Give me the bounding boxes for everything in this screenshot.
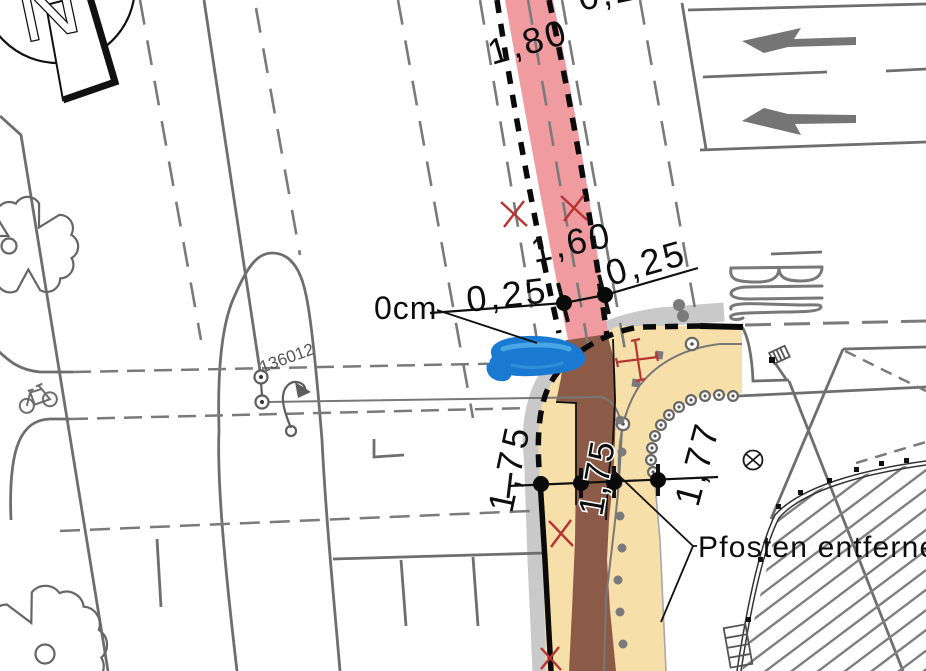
svg-text:Pfosten entfernen: Pfosten entfernen xyxy=(698,531,926,564)
svg-text:0cm: 0cm xyxy=(374,290,437,326)
